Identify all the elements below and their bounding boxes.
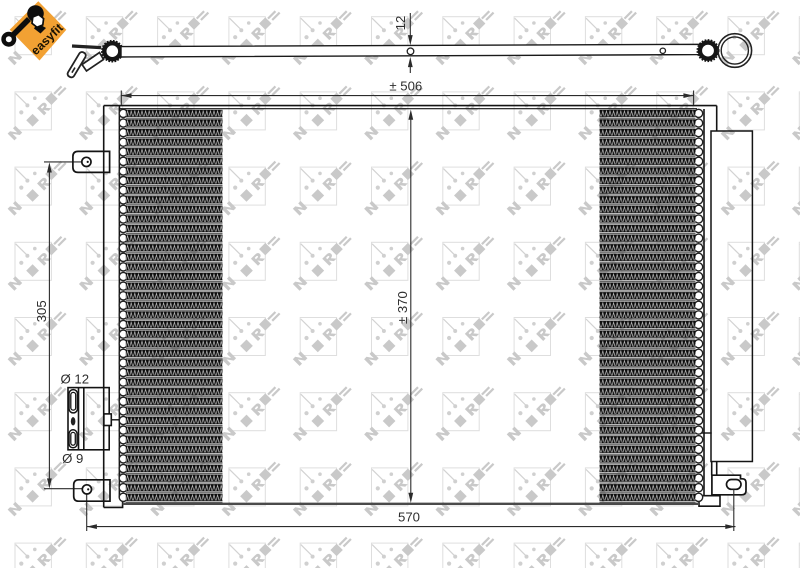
- svg-text:± 370: ± 370: [395, 291, 410, 324]
- svg-text:Ø 12: Ø 12: [61, 372, 90, 387]
- svg-text:570: 570: [398, 510, 420, 525]
- svg-text:12: 12: [393, 16, 408, 31]
- svg-text:Ø 9: Ø 9: [62, 451, 83, 466]
- svg-text:305: 305: [34, 300, 49, 322]
- svg-text:± 506: ± 506: [389, 79, 422, 94]
